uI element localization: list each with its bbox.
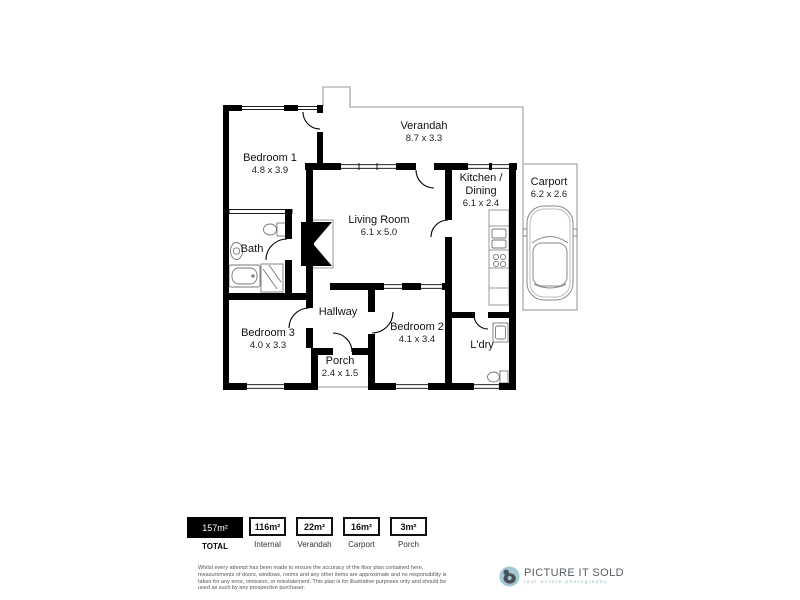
toilet-icon xyxy=(264,223,287,236)
brand-tagline: real estate photography xyxy=(524,579,624,585)
fireplace xyxy=(301,220,333,268)
room-dims: 4.0 x 3.3 xyxy=(241,340,295,352)
room-label-bedroom-1: Bedroom 1 4.8 x 3.9 xyxy=(243,152,297,177)
room-label-bath: Bath xyxy=(241,243,264,256)
room-dims: 8.7 x 3.3 xyxy=(400,133,447,145)
area-value-internal: 116m² xyxy=(249,517,286,536)
floorplan-drawing xyxy=(0,0,800,600)
area-label-porch: Porch xyxy=(390,540,427,549)
legend-item-carport: 16m² Carport xyxy=(343,517,380,549)
legend-item-porch: 3m² Porch xyxy=(390,517,427,549)
room-label-bedroom-2: Bedroom 2 4.1 x 3.4 xyxy=(390,321,444,346)
area-label-carport: Carport xyxy=(343,540,380,549)
room-label-living-room: Living Room 6.1 x 5.0 xyxy=(348,214,409,239)
room-label-porch: Porch 2.4 x 1.5 xyxy=(322,355,358,380)
room-name: Bath xyxy=(241,243,264,256)
car-icon xyxy=(523,206,577,300)
legend-item-verandah: 22m² Verandah xyxy=(296,517,333,549)
brand-name: PICTURE IT SOLD xyxy=(524,568,624,579)
room-label-laundry: L'dry xyxy=(470,339,494,352)
room-dims: 6.2 x 2.6 xyxy=(531,189,568,201)
brand-logo: PICTURE IT SOLD real estate photography xyxy=(498,565,624,588)
area-label-verandah: Verandah xyxy=(296,540,333,549)
room-dims: 4.1 x 3.4 xyxy=(390,334,444,346)
room-dims: 2.4 x 1.5 xyxy=(322,368,358,380)
hollow-wall xyxy=(229,210,292,214)
area-value-total: 157m² xyxy=(187,517,243,538)
legend-item-total: 157m² TOTAL xyxy=(187,517,243,551)
disclaimer-text: Whilst every attempt has been made to en… xyxy=(198,565,456,592)
room-name: L'dry xyxy=(470,339,494,352)
room-label-verandah: Verandah 8.7 x 3.3 xyxy=(400,120,447,145)
room-name: Bedroom 1 xyxy=(243,152,297,165)
room-label-carport: Carport 6.2 x 2.6 xyxy=(531,176,568,201)
area-value-porch: 3m² xyxy=(390,517,427,536)
room-name: Verandah xyxy=(400,120,447,133)
room-name: Porch xyxy=(322,355,358,368)
area-label-internal: Internal xyxy=(249,540,286,549)
room-name: Living Room xyxy=(348,214,409,227)
area-value-carport: 16m² xyxy=(343,517,380,536)
room-name: Hallway xyxy=(319,306,358,319)
laundry-tub-icon xyxy=(493,323,508,342)
laundry-toilet-icon xyxy=(488,371,509,383)
room-name: Kitchen / Dining xyxy=(449,172,513,198)
room-label-bedroom-3: Bedroom 3 4.0 x 3.3 xyxy=(241,327,295,352)
area-value-verandah: 22m² xyxy=(296,517,333,536)
room-dims: 6.1 x 5.0 xyxy=(348,227,409,239)
camera-lens-icon xyxy=(498,565,521,588)
area-label-total: TOTAL xyxy=(187,542,243,551)
bathtub-icon xyxy=(229,265,260,287)
legend-item-internal: 116m² Internal xyxy=(249,517,286,549)
room-dims: 4.8 x 3.9 xyxy=(243,165,297,177)
room-name: Bedroom 3 xyxy=(241,327,295,340)
floorplan-page: Verandah 8.7 x 3.3 Bedroom 1 4.8 x 3.9 K… xyxy=(0,0,800,600)
shower-icon xyxy=(261,264,283,292)
room-name: Bedroom 2 xyxy=(390,321,444,334)
room-label-hallway: Hallway xyxy=(319,306,358,319)
room-name: Carport xyxy=(531,176,568,189)
room-dims: 6.1 x 2.4 xyxy=(449,198,513,210)
room-label-kitchen-dining: Kitchen / Dining 6.1 x 2.4 xyxy=(449,172,513,210)
